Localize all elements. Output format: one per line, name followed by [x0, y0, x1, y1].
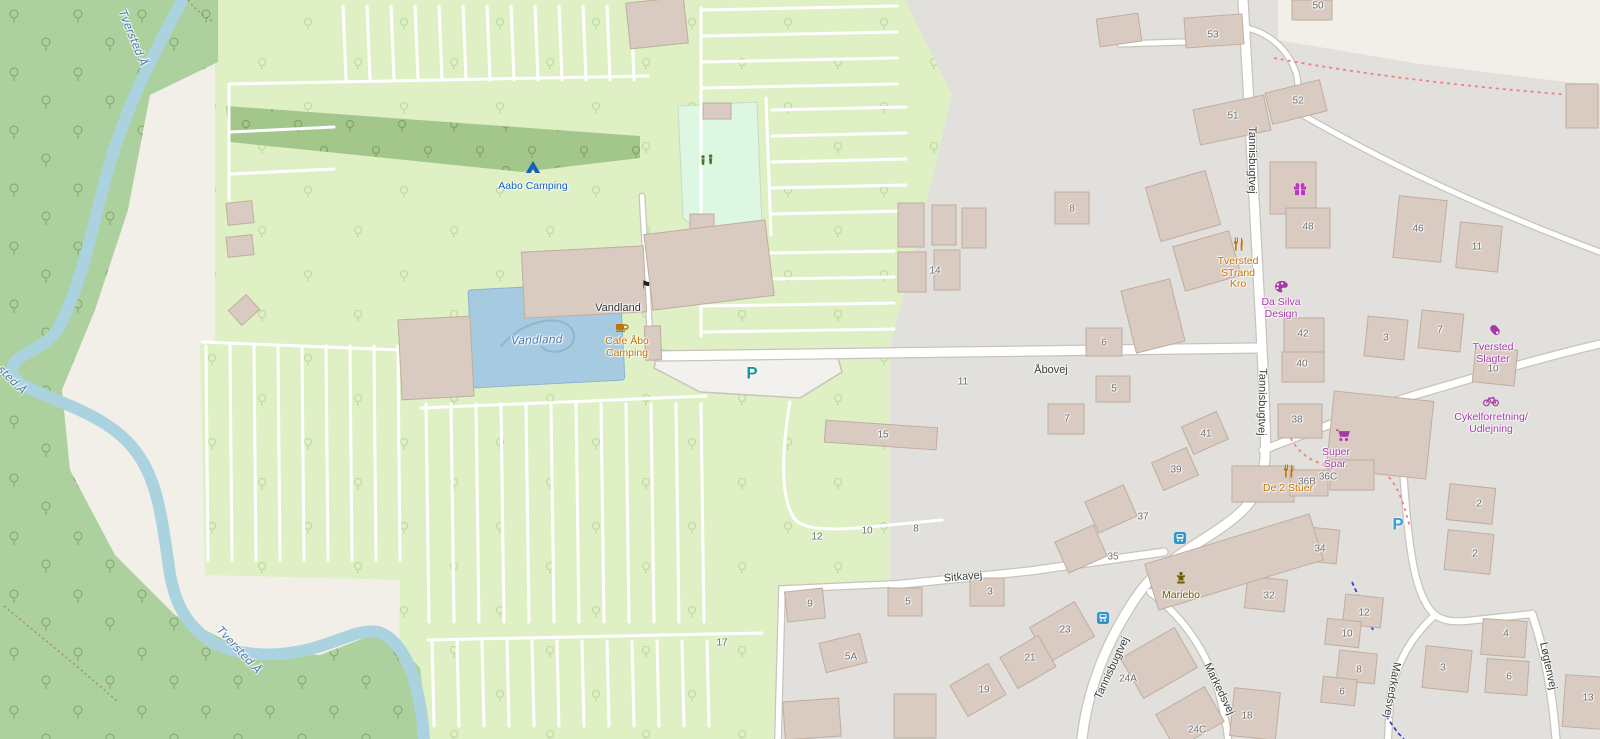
house-number: 3 [987, 587, 993, 598]
house-number: 5 [905, 597, 911, 608]
water-label: Vandland [511, 333, 563, 348]
house-number: 38 [1291, 415, 1302, 426]
road-label: Åbovej [1034, 364, 1068, 377]
palette-icon [1274, 281, 1288, 294]
house-number: 9 [807, 599, 813, 610]
house-number: 7 [1064, 414, 1070, 425]
super-spar-label: Super [1322, 446, 1350, 458]
flag-icon: ⚑ [641, 281, 651, 292]
cafe-abo-camping-label: Camping [606, 347, 648, 359]
cafe-abo-camping-label: Cafe Åbo [605, 335, 649, 347]
house-number: 48 [1302, 222, 1313, 233]
restaurant-icon [1283, 465, 1294, 478]
house-number: 24A [1119, 674, 1137, 685]
house-number: 21 [1024, 653, 1035, 664]
house-number: 12 [811, 532, 822, 543]
house-number: 14 [929, 266, 940, 277]
house-number: 17 [716, 638, 727, 649]
house-number: 19 [978, 685, 989, 696]
house-number: 8 [1356, 665, 1362, 676]
tent-icon [525, 160, 541, 174]
road-label: Tannisbugtvej [1246, 126, 1258, 193]
house-number: 18 [1241, 711, 1252, 722]
map-canvas[interactable]: ÅbovejTannisbugtvejTannisbugtvejTannisbu… [0, 0, 1600, 739]
butcher-icon [1488, 324, 1502, 337]
cykelforretning-udlejning-label: Cykelforretning/ [1454, 411, 1528, 423]
house-number: 11 [958, 377, 968, 388]
house-number: 37 [1137, 512, 1148, 523]
house-number: 5 [1111, 384, 1117, 395]
restaurant-icon [1233, 238, 1244, 251]
water-label: Tversted Å [116, 8, 150, 68]
house-number: 11 [1472, 242, 1482, 253]
house-number: 7 [1437, 325, 1443, 336]
house-number: 6 [1506, 672, 1512, 683]
house-number: 40 [1296, 359, 1307, 370]
tversted-slagter-label: Tversted [1473, 341, 1514, 353]
house-number: 15 [877, 430, 888, 441]
house-number: 50 [1312, 1, 1323, 12]
house-number: 4 [1503, 629, 1509, 640]
statue-icon [1175, 572, 1188, 585]
gift-icon [1293, 183, 1307, 196]
parking-icon: P [746, 365, 757, 382]
house-number: 8 [1069, 204, 1075, 215]
tversted-strand-kro-label: STrand [1221, 267, 1255, 279]
road-label: Tannisbugtvej [1092, 635, 1131, 701]
house-number: 6 [1339, 687, 1345, 698]
map-labels-layer: ÅbovejTannisbugtvejTannisbugtvejTannisbu… [0, 0, 1600, 739]
house-number: 24C [1188, 725, 1206, 736]
house-number: 52 [1292, 96, 1303, 107]
vandland-place-label: Vandland [595, 302, 641, 314]
house-number: 41 [1200, 429, 1211, 440]
house-number: 36C [1319, 472, 1337, 483]
house-number: 46 [1412, 224, 1423, 235]
cart-icon [1336, 429, 1351, 442]
house-number: 6 [1101, 338, 1107, 349]
house-number: 3 [1440, 663, 1446, 674]
house-number: 12 [1358, 608, 1369, 619]
cykelforretning-udlejning-label: Udlejning [1469, 423, 1513, 435]
house-number: 5A [845, 652, 857, 663]
cafe-icon [615, 321, 629, 333]
house-number: 3 [1383, 333, 1389, 344]
tversted-strand-kro-label: Tversted [1218, 255, 1259, 267]
house-number: 13 [1582, 693, 1593, 704]
road-label: Markedsvej [1381, 661, 1403, 718]
parking-icon: P [1392, 516, 1403, 533]
house-number: 2 [1476, 499, 1482, 510]
house-number: 10 [861, 526, 872, 537]
bus-stop-icon [1097, 612, 1110, 625]
de-2-stuer-label: De 2 Stuer [1263, 482, 1313, 494]
house-number: 32 [1263, 591, 1274, 602]
bus-stop-icon [1174, 532, 1187, 545]
aabo-camping-label: Aabo Camping [498, 180, 567, 192]
house-number: 8 [913, 524, 919, 535]
house-number: 23 [1059, 625, 1070, 636]
super-spar-label: Spar. [1324, 458, 1349, 470]
house-number: 53 [1207, 30, 1218, 41]
tversted-slagter-label: Slagter [1476, 353, 1509, 365]
house-number: 51 [1227, 111, 1238, 122]
road-label: Markedsvej [1201, 661, 1236, 717]
road-label: Sitkavej [943, 569, 982, 584]
da-silva-design-label: Da Silva [1261, 296, 1300, 308]
house-number: 39 [1170, 465, 1181, 476]
mariebo-label: Mariebo [1162, 589, 1200, 601]
water-label: sted Å [0, 363, 29, 397]
road-label: Løgtenvej [1537, 641, 1559, 691]
house-number: 35 [1107, 552, 1118, 563]
house-number: 10 [1341, 629, 1352, 640]
house-number: 2 [1472, 549, 1478, 560]
da-silva-design-label: Design [1265, 308, 1298, 320]
road-label: Tannisbugtvej [1255, 368, 1268, 435]
house-number: 10 [1487, 364, 1498, 375]
house-number: 34 [1314, 544, 1325, 555]
bicycle-icon [1483, 396, 1499, 407]
playground-icon [698, 154, 716, 167]
house-number: 42 [1297, 329, 1308, 340]
tversted-strand-kro-label: Kro [1230, 278, 1246, 290]
water-label: Tversted Å [214, 624, 264, 676]
